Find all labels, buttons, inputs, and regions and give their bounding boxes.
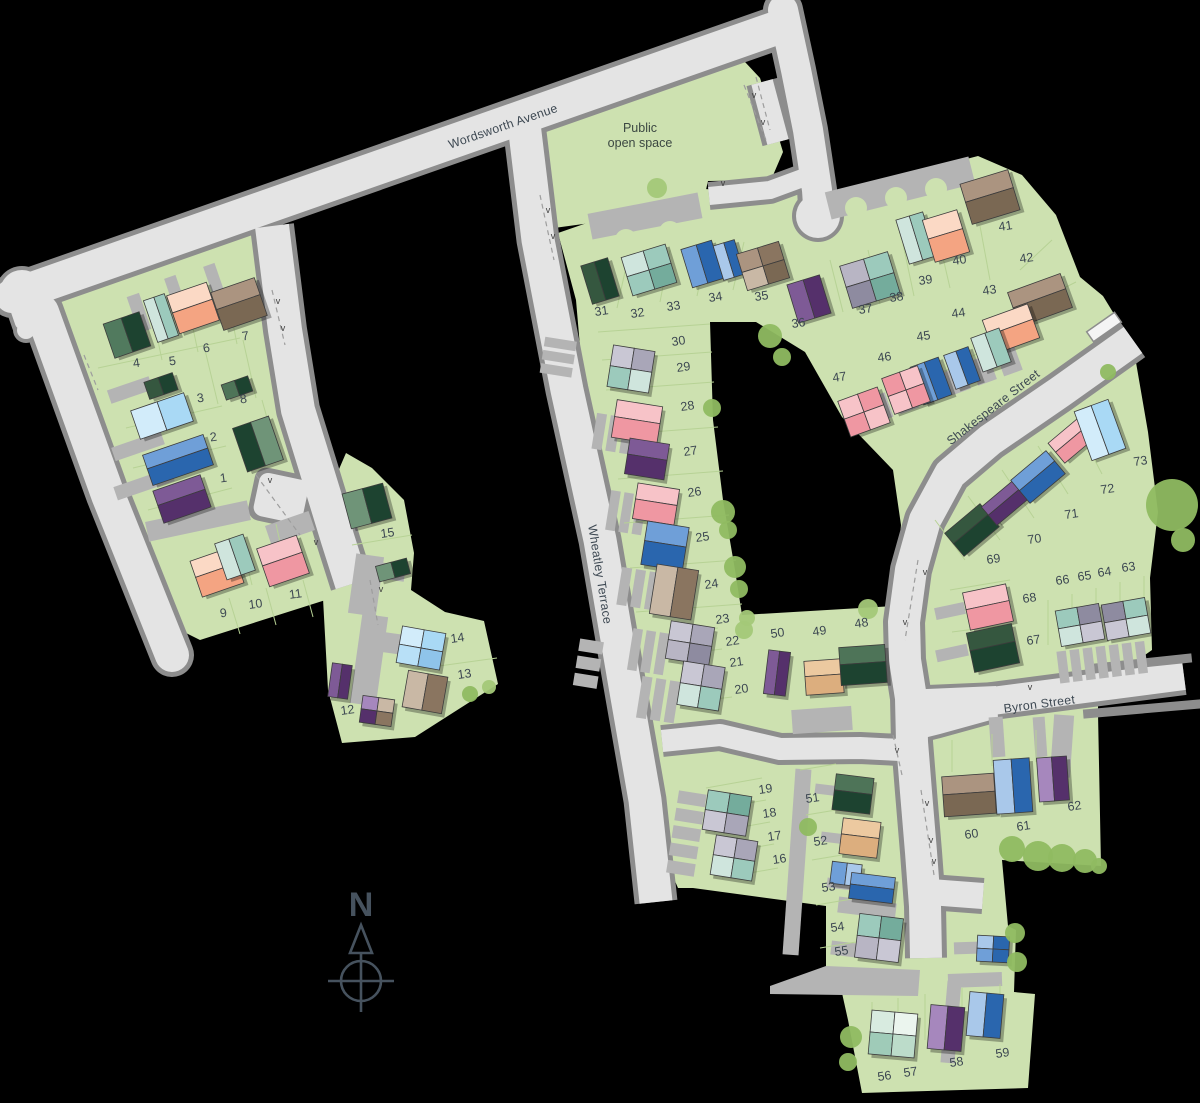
svg-text:46: 46 bbox=[877, 349, 893, 365]
svg-text:41: 41 bbox=[998, 218, 1014, 234]
svg-text:v: v bbox=[932, 856, 937, 866]
svg-text:25: 25 bbox=[695, 529, 711, 545]
svg-text:45: 45 bbox=[916, 328, 932, 344]
svg-text:v: v bbox=[923, 567, 928, 577]
svg-text:48: 48 bbox=[854, 615, 870, 631]
svg-text:56: 56 bbox=[877, 1068, 893, 1084]
svg-text:35: 35 bbox=[754, 288, 770, 304]
svg-text:72: 72 bbox=[1100, 481, 1116, 497]
svg-text:v: v bbox=[281, 323, 286, 333]
svg-text:68: 68 bbox=[1022, 590, 1038, 606]
svg-text:27: 27 bbox=[683, 443, 699, 459]
svg-text:38: 38 bbox=[889, 289, 905, 305]
svg-text:v: v bbox=[925, 798, 930, 808]
svg-text:14: 14 bbox=[450, 630, 466, 646]
svg-text:v: v bbox=[551, 231, 556, 241]
svg-text:13: 13 bbox=[457, 666, 473, 682]
svg-text:21: 21 bbox=[729, 654, 745, 670]
svg-text:64: 64 bbox=[1097, 564, 1113, 580]
svg-text:v: v bbox=[1028, 682, 1033, 692]
svg-text:Public: Public bbox=[623, 121, 657, 135]
svg-text:32: 32 bbox=[630, 305, 646, 321]
svg-text:57: 57 bbox=[903, 1064, 919, 1080]
svg-text:43: 43 bbox=[982, 282, 998, 298]
svg-text:18: 18 bbox=[762, 805, 778, 821]
svg-text:52: 52 bbox=[813, 833, 829, 849]
svg-text:65: 65 bbox=[1077, 568, 1093, 584]
svg-text:16: 16 bbox=[772, 851, 788, 867]
svg-text:26: 26 bbox=[687, 484, 703, 500]
svg-text:17: 17 bbox=[767, 828, 783, 844]
svg-text:54: 54 bbox=[830, 919, 846, 935]
svg-text:36: 36 bbox=[791, 315, 807, 331]
svg-text:v: v bbox=[752, 90, 757, 100]
svg-text:v: v bbox=[929, 835, 934, 845]
svg-text:v: v bbox=[276, 296, 281, 306]
svg-text:v: v bbox=[895, 745, 900, 755]
svg-text:v: v bbox=[546, 205, 551, 215]
svg-text:66: 66 bbox=[1055, 572, 1071, 588]
svg-text:29: 29 bbox=[676, 359, 692, 375]
svg-text:51: 51 bbox=[805, 790, 821, 806]
svg-text:v: v bbox=[721, 178, 726, 188]
svg-text:v: v bbox=[903, 617, 908, 627]
svg-text:61: 61 bbox=[1016, 818, 1032, 834]
svg-text:47: 47 bbox=[832, 369, 848, 385]
svg-text:44: 44 bbox=[951, 305, 967, 321]
svg-text:open space: open space bbox=[608, 136, 673, 150]
svg-text:N: N bbox=[349, 886, 374, 924]
svg-text:v: v bbox=[314, 537, 319, 547]
svg-text:19: 19 bbox=[758, 781, 774, 797]
svg-text:58: 58 bbox=[949, 1054, 965, 1070]
svg-text:28: 28 bbox=[680, 398, 696, 414]
svg-text:67: 67 bbox=[1026, 632, 1042, 648]
svg-text:62: 62 bbox=[1067, 798, 1083, 814]
svg-text:63: 63 bbox=[1121, 559, 1137, 575]
svg-text:12: 12 bbox=[340, 702, 356, 718]
svg-text:40: 40 bbox=[952, 252, 968, 268]
svg-text:15: 15 bbox=[380, 525, 396, 541]
svg-text:22: 22 bbox=[725, 633, 741, 649]
svg-text:31: 31 bbox=[594, 303, 610, 319]
svg-text:34: 34 bbox=[708, 289, 724, 305]
svg-text:10: 10 bbox=[248, 596, 264, 612]
svg-text:70: 70 bbox=[1027, 531, 1043, 547]
svg-text:v: v bbox=[379, 584, 384, 594]
svg-text:55: 55 bbox=[834, 943, 850, 959]
svg-text:24: 24 bbox=[704, 576, 720, 592]
svg-text:11: 11 bbox=[288, 586, 303, 602]
svg-text:60: 60 bbox=[964, 826, 980, 842]
svg-text:50: 50 bbox=[770, 625, 786, 641]
svg-text:20: 20 bbox=[734, 681, 750, 697]
svg-text:37: 37 bbox=[858, 301, 874, 317]
svg-text:42: 42 bbox=[1019, 250, 1035, 266]
svg-text:23: 23 bbox=[715, 611, 731, 627]
svg-text:59: 59 bbox=[995, 1045, 1011, 1061]
svg-text:33: 33 bbox=[666, 298, 682, 314]
svg-text:53: 53 bbox=[821, 879, 837, 895]
svg-text:v: v bbox=[761, 117, 766, 127]
svg-text:30: 30 bbox=[671, 333, 687, 349]
svg-text:49: 49 bbox=[812, 623, 828, 639]
svg-text:69: 69 bbox=[986, 551, 1002, 567]
svg-text:71: 71 bbox=[1064, 506, 1080, 522]
svg-text:v: v bbox=[268, 475, 273, 485]
svg-text:73: 73 bbox=[1133, 453, 1149, 469]
svg-text:39: 39 bbox=[918, 272, 934, 288]
